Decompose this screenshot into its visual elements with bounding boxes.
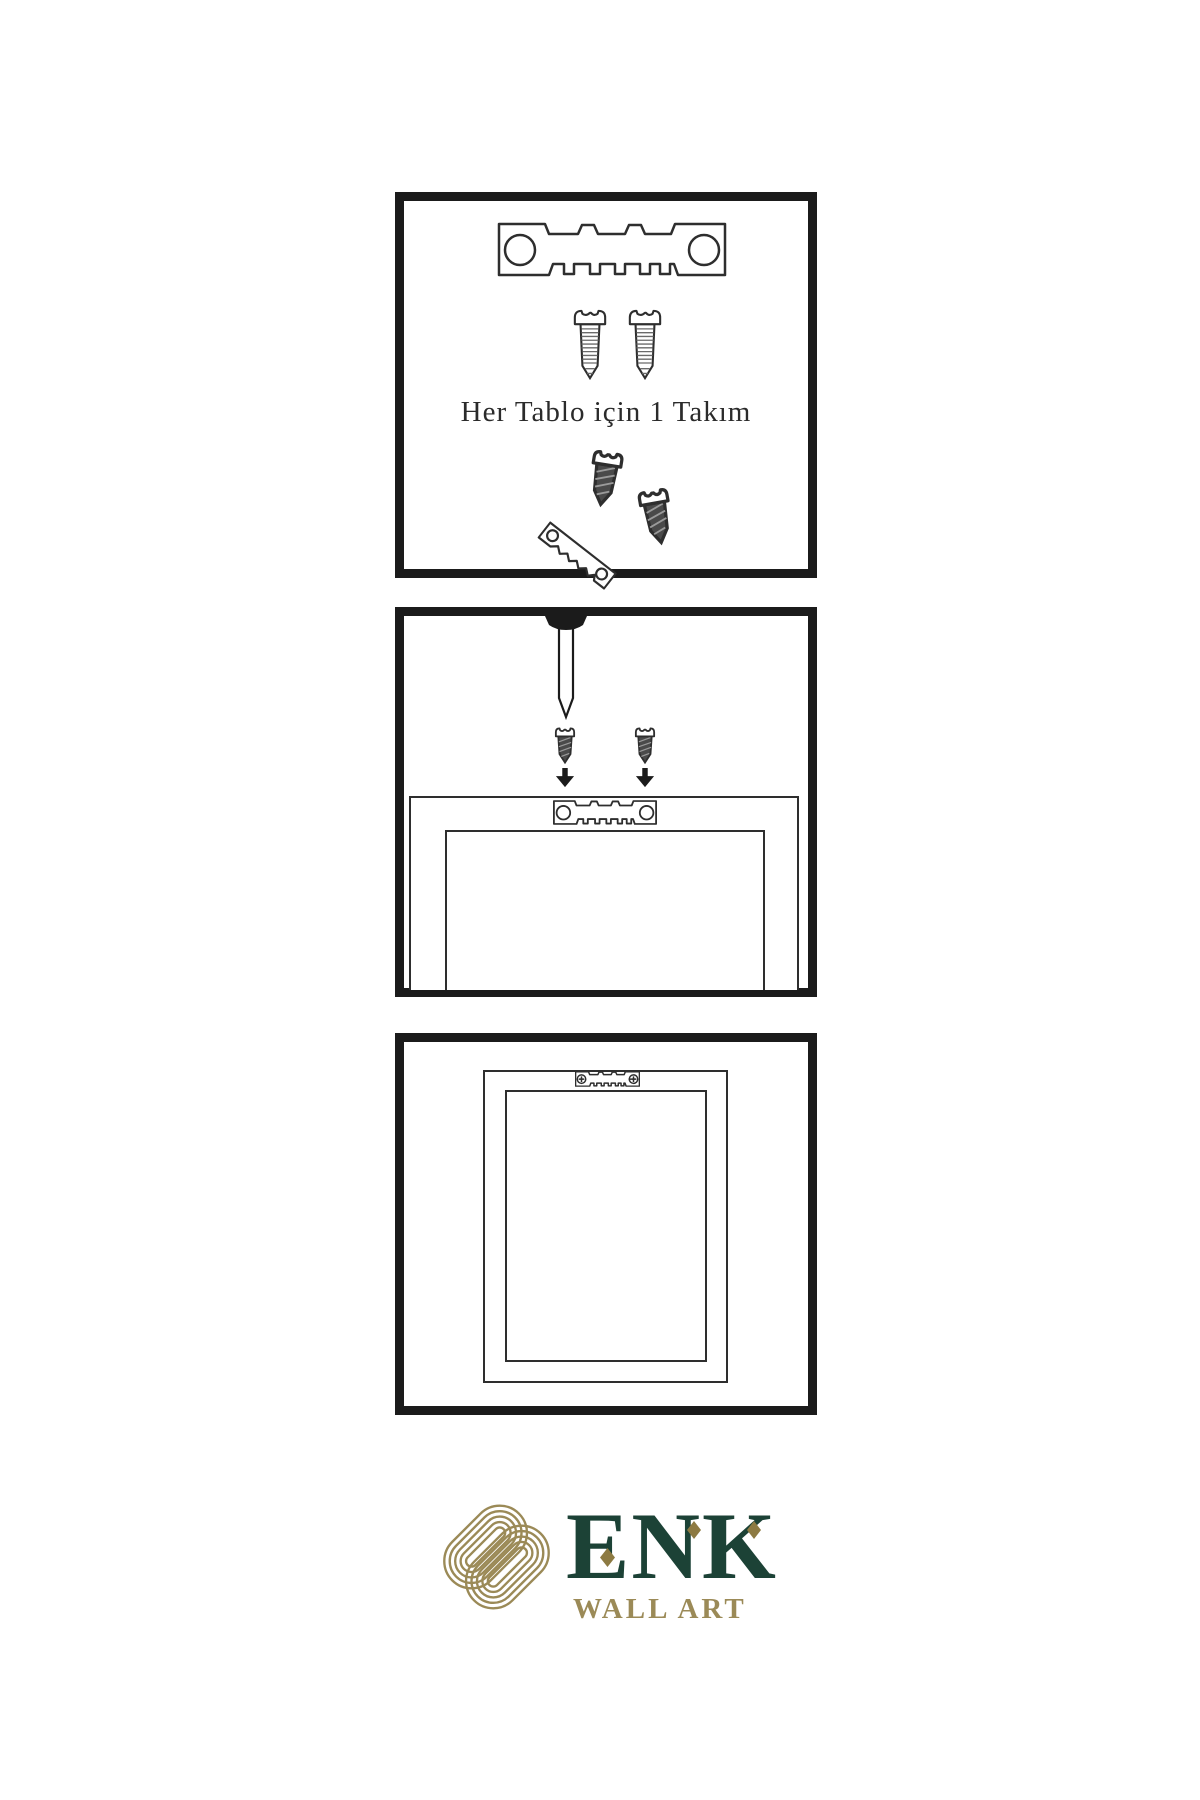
screw-icon	[554, 726, 576, 765]
knot-emblem-icon	[433, 1487, 560, 1627]
step-2-panel	[395, 607, 817, 997]
step-3-panel	[395, 1033, 817, 1415]
brand-tagline: WALL ART	[573, 1593, 747, 1626]
down-arrow-icon	[554, 768, 576, 788]
frame-back-inner-edge	[445, 830, 765, 990]
screw-icon	[572, 307, 608, 383]
brand-name: ENK	[566, 1496, 796, 1596]
screw-icon	[627, 307, 663, 383]
step-1-panel: Her Tablo için 1 Takım	[395, 192, 817, 578]
nail-icon	[544, 616, 588, 722]
sawtooth-hanger-icon	[553, 800, 657, 825]
sawtooth-hanger-icon	[497, 222, 727, 277]
tilted-sawtooth-hanger-icon	[575, 444, 660, 550]
down-arrow-icon	[634, 768, 656, 788]
instruction-sheet: Her Tablo için 1 Takım	[0, 0, 1200, 1800]
screw-icon	[634, 726, 656, 765]
mounted-sawtooth-hanger-icon	[575, 1071, 640, 1087]
set-per-frame-caption: Her Tablo için 1 Takım	[404, 396, 808, 429]
hung-frame-inner-edge	[505, 1090, 707, 1362]
